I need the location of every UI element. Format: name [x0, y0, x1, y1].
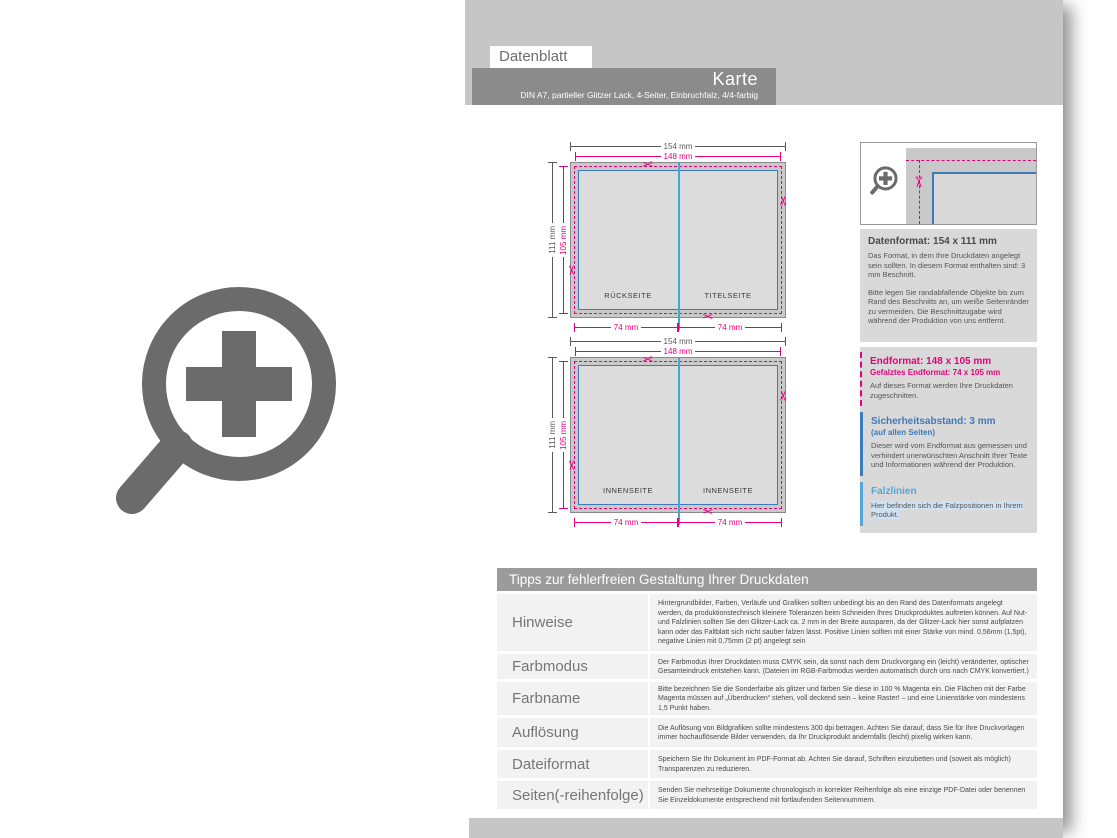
endformat-section: Endformat: 148 x 105 mm Gefalztes Endfor…: [860, 352, 1037, 406]
dimension-label: 74 mm: [715, 324, 745, 332]
endformat-subtitle: Gefalztes Endformat: 74 x 105 mm: [870, 368, 1029, 378]
dimension-label: 111 mm: [549, 223, 557, 257]
row-text: Hintergrundbilder, Farben, Verläufe und …: [658, 599, 1029, 647]
dimension-half-left: 74 mm: [574, 323, 678, 332]
format-sections-box: Endformat: 148 x 105 mm Gefalztes Endfor…: [860, 347, 1037, 533]
endformat-title: Endformat: 148 x 105 mm: [870, 356, 1029, 368]
scissors-icon: ✂: [777, 390, 790, 401]
table-row: Seiten(-reihenfolge) Senden Sie mehrseit…: [497, 781, 1037, 809]
dimension-width-total: 154 mm: [570, 337, 786, 346]
zoom-plus-icon: [108, 276, 362, 550]
datenblatt-tab-label: Datenblatt: [499, 48, 567, 65]
fold-line: [678, 357, 680, 525]
scissors-icon: ✂: [565, 265, 578, 276]
datenformat-section: Datenformat: 154 x 111 mm Das Format, in…: [860, 229, 1037, 342]
page-label-right: INNENSEITE: [678, 486, 778, 495]
dimension-width-total: 154 mm: [570, 142, 786, 151]
datenformat-body-1: Das Format, in dem Ihre Druckdaten angel…: [868, 251, 1029, 280]
endformat-body: Auf dieses Format werden Ihre Druckdaten…: [870, 381, 1029, 400]
sicherheitsabstand-section: Sicherheitsabstand: 3 mm (auf allen Seit…: [860, 412, 1037, 476]
product-header: Karte DIN A7, partieller Glitzer Lack, 4…: [472, 68, 776, 105]
row-label: Farbmodus: [497, 654, 648, 679]
scissors-icon: ✂: [702, 310, 713, 323]
dimension-label: 154 mm: [661, 338, 696, 346]
scissors-icon: ✂: [642, 353, 653, 366]
dimension-label: 148 mm: [661, 153, 696, 161]
dimension-label: 74 mm: [611, 519, 641, 527]
row-text: Senden Sie mehrseitige Dokumente chronol…: [658, 786, 1029, 805]
table-row: Auflösung Die Auflösung von Bildgrafiken…: [497, 718, 1037, 747]
corner-detail-box: ✂: [860, 142, 1037, 225]
table-row: Hinweise Hintergrundbilder, Farben, Verl…: [497, 594, 1037, 651]
tips-title: Tipps zur fehlerfreien Gestaltung Ihrer …: [509, 572, 809, 587]
page-label-right: TITELSEITE: [678, 291, 778, 300]
diagram-inner-pages: 154 mm 148 mm 111 mm 105 mm INNENSEITE I…: [540, 337, 850, 532]
dimension-label: 74 mm: [611, 324, 641, 332]
row-text: Die Auflösung von Bildgrafiken sollte mi…: [658, 724, 1029, 743]
product-subtitle: DIN A7, partieller Glitzer Lack, 4-Seite…: [472, 90, 758, 101]
scissors-icon: ✂: [909, 176, 927, 189]
falzlinien-body: Hier befinden sich die Falzpositionen in…: [871, 501, 1029, 520]
table-row: Farbmodus Der Farbmodus Ihrer Druckdaten…: [497, 654, 1037, 679]
row-text: Speichern Sie Ihr Dokument im PDF-Format…: [658, 755, 1029, 774]
falzlinien-title: Falzlinien: [871, 486, 1029, 498]
table-row: Dateiformat Speichern Sie Ihr Dokument i…: [497, 750, 1037, 778]
dimension-width-trim: 148 mm: [575, 347, 781, 356]
row-label: Farbname: [497, 682, 648, 715]
table-row: Farbname Bitte bezeichnen Sie die Sonder…: [497, 682, 1037, 715]
dimension-height-trim: 105 mm: [559, 361, 568, 509]
dimension-label: 111 mm: [549, 418, 557, 452]
scissors-icon: ✂: [702, 505, 713, 518]
row-label: Dateiformat: [497, 750, 648, 778]
dimension-half-left: 74 mm: [574, 518, 678, 527]
row-text: Bitte bezeichnen Sie die Sonderfarbe als…: [658, 685, 1029, 714]
sicherheitsabstand-body: Dieser wird vom Endformat aus gemessen u…: [871, 441, 1029, 470]
tips-table-header: Tipps zur fehlerfreien Gestaltung Ihrer …: [497, 568, 1037, 591]
dimension-label: 74 mm: [715, 519, 745, 527]
dimension-height-trim: 105 mm: [559, 166, 568, 314]
row-label: Hinweise: [497, 594, 648, 651]
bottom-gray-band: [469, 818, 1063, 838]
dimension-label: 105 mm: [560, 223, 568, 258]
fold-line: [678, 162, 680, 330]
datenblatt-tab: Datenblatt: [490, 46, 592, 68]
detail-safety-area: [932, 172, 1036, 224]
sicherheitsabstand-title: Sicherheitsabstand: 3 mm: [871, 416, 1029, 428]
product-title: Karte: [472, 68, 758, 90]
datasheet-page: Datenblatt Karte DIN A7, partieller Glit…: [0, 0, 1117, 838]
sicherheitsabstand-subtitle: (auf allen Seiten): [871, 428, 1029, 438]
dimension-label: 105 mm: [560, 418, 568, 453]
dimension-height-total: 111 mm: [548, 162, 557, 318]
dimension-label: 154 mm: [661, 143, 696, 151]
scissors-icon: ✂: [565, 460, 578, 471]
page-label-left: INNENSEITE: [578, 486, 678, 495]
page-label-left: RÜCKSEITE: [578, 291, 678, 300]
scissors-icon: ✂: [777, 195, 790, 206]
datenformat-body-2: Bitte legen Sie randabfallende Objekte b…: [868, 288, 1029, 326]
scissors-icon: ✂: [642, 158, 653, 171]
row-label: Seiten(-reihenfolge): [497, 781, 648, 809]
dimension-half-right: 74 mm: [678, 323, 782, 332]
dimension-width-trim: 148 mm: [575, 152, 781, 161]
detail-trim-line-v: [919, 160, 920, 224]
detail-trim-line-h: [906, 160, 1036, 161]
row-label: Auflösung: [497, 718, 648, 747]
datenformat-title: Datenformat: 154 x 111 mm: [868, 236, 1029, 248]
dimension-half-right: 74 mm: [678, 518, 782, 527]
falzlinien-section: Falzlinien Hier befinden sich die Falzpo…: [860, 482, 1037, 526]
dimension-label: 148 mm: [661, 348, 696, 356]
diagram-outer-pages: 154 mm 148 mm 111 mm 105 mm RÜCKSEITE TI…: [540, 142, 850, 337]
zoom-plus-icon-small: [869, 165, 901, 199]
row-text: Der Farbmodus Ihrer Druckdaten muss CMYK…: [658, 658, 1029, 677]
dimension-height-total: 111 mm: [548, 357, 557, 513]
